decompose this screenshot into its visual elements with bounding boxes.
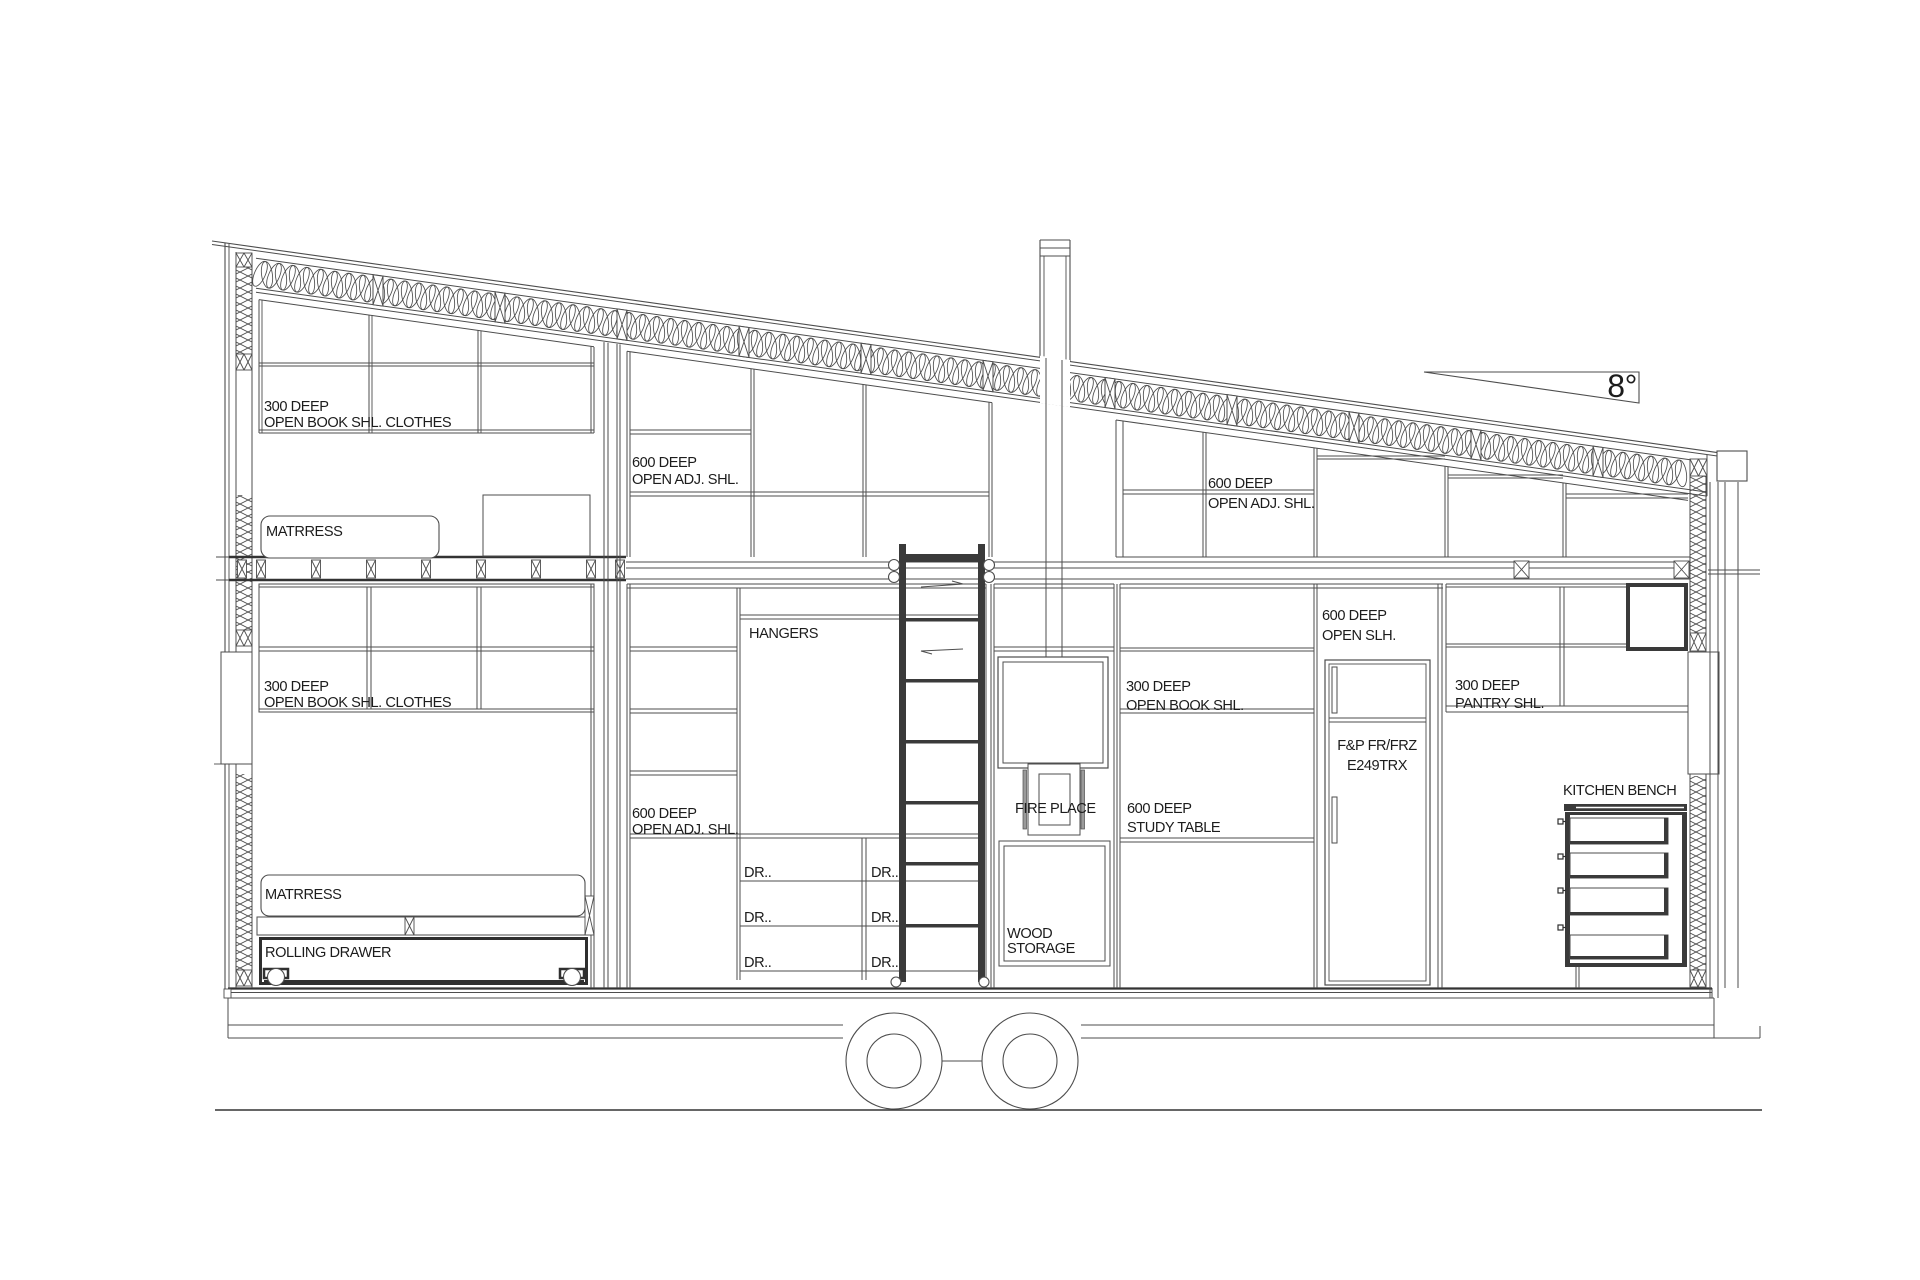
svg-text:FIRE PLACE: FIRE PLACE xyxy=(1015,801,1096,817)
svg-text:300 DEEP: 300 DEEP xyxy=(1126,679,1191,695)
svg-text:OPEN BOOK SHL. CLOTHES: OPEN BOOK SHL. CLOTHES xyxy=(264,695,452,711)
svg-text:E249TRX: E249TRX xyxy=(1347,758,1408,774)
svg-text:600 DEEP: 600 DEEP xyxy=(632,806,697,822)
svg-text:DR..: DR.. xyxy=(744,865,771,881)
svg-text:HANGERS: HANGERS xyxy=(749,626,819,642)
svg-text:KITCHEN BENCH: KITCHEN BENCH xyxy=(1563,783,1676,799)
svg-text:STORAGE: STORAGE xyxy=(1007,941,1076,957)
svg-text:8°: 8° xyxy=(1607,368,1637,404)
svg-text:DR..: DR.. xyxy=(744,955,771,971)
svg-text:WOOD: WOOD xyxy=(1007,926,1052,942)
svg-text:DR..: DR.. xyxy=(871,910,898,926)
svg-text:F&P FR/FRZ: F&P FR/FRZ xyxy=(1337,738,1417,754)
svg-text:300 DEEP: 300 DEEP xyxy=(264,399,329,415)
svg-text:300 DEEP: 300 DEEP xyxy=(1455,678,1520,694)
svg-text:ROLLING DRAWER: ROLLING DRAWER xyxy=(265,945,391,961)
svg-text:DR..: DR.. xyxy=(871,955,898,971)
svg-text:OPEN BOOK SHL. CLOTHES: OPEN BOOK SHL. CLOTHES xyxy=(264,415,452,431)
svg-text:DR..: DR.. xyxy=(871,865,898,881)
svg-text:600 DEEP: 600 DEEP xyxy=(1127,801,1192,817)
svg-text:OPEN SLH.: OPEN SLH. xyxy=(1322,628,1396,644)
svg-text:DR..: DR.. xyxy=(744,910,771,926)
svg-text:600 DEEP: 600 DEEP xyxy=(632,455,697,471)
svg-text:OPEN ADJ. SHL.: OPEN ADJ. SHL. xyxy=(1208,496,1314,512)
svg-text:300 DEEP: 300 DEEP xyxy=(264,679,329,695)
svg-text:600 DEEP: 600 DEEP xyxy=(1322,608,1387,624)
svg-text:MATRRESS: MATRRESS xyxy=(265,887,342,903)
svg-text:OPEN ADJ. SHL.: OPEN ADJ. SHL. xyxy=(632,822,738,838)
svg-text:OPEN ADJ. SHL.: OPEN ADJ. SHL. xyxy=(632,472,738,488)
svg-text:PANTRY SHL.: PANTRY SHL. xyxy=(1455,696,1544,712)
svg-text:STUDY TABLE: STUDY TABLE xyxy=(1127,820,1221,836)
svg-text:MATRRESS: MATRRESS xyxy=(266,524,343,540)
svg-text:600 DEEP: 600 DEEP xyxy=(1208,476,1273,492)
svg-text:OPEN BOOK SHL.: OPEN BOOK SHL. xyxy=(1126,698,1244,714)
